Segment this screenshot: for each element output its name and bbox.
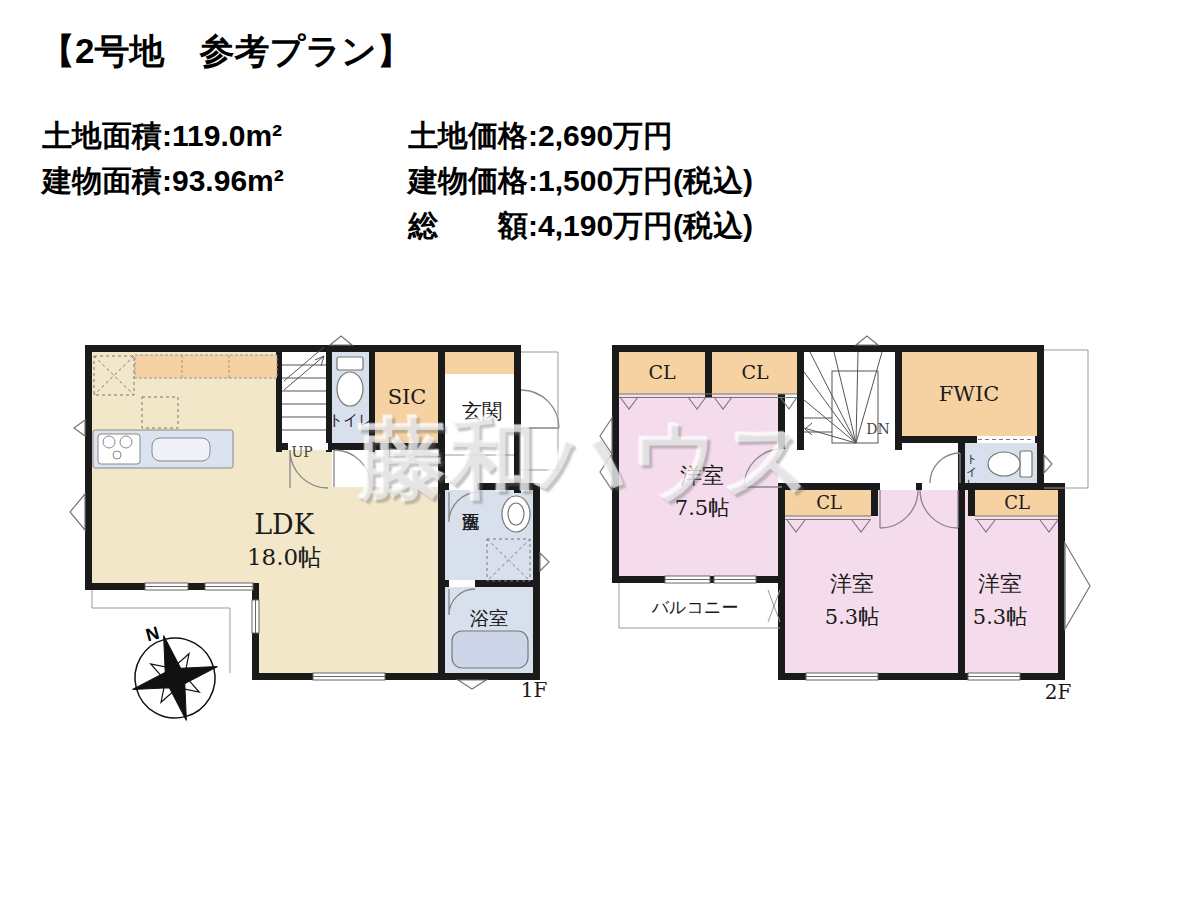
watermark: 藤和ハウス [358,400,814,519]
room-bathroom [445,587,533,673]
land-area-text: 土地面積:119.0m² [42,116,282,157]
page-title: 【2号地 参考プラン】 [40,28,412,75]
building-area-text: 建物面積:93.96m² [42,161,284,202]
label-closet-2: CL [741,363,768,382]
wall [1037,345,1044,490]
total-price-text: 総 額:4,190万円(税込) [408,206,753,247]
wall [1058,483,1065,680]
label-bathroom: 浴室 [470,609,508,628]
label-bedroom2-size: 5.3帖 [825,607,879,628]
wall [276,345,282,452]
floor1-tag: 1F [521,680,548,700]
floorplan-flyer: 【2号地 参考プラン】 土地面積:119.0m² 建物面積:93.96m² 土地… [0,0,1200,900]
label-ldk: LDK [254,511,314,538]
wall [612,345,1044,352]
wall [705,345,712,397]
wall [895,345,902,450]
label-stairs-dn: DN [866,422,889,436]
label-stairs-up: UP [291,445,312,459]
wall [252,583,259,680]
wall [958,490,965,680]
label-bedroom3: 洋室 [978,573,1022,595]
compass-icon [121,624,229,732]
label-balcony: バルコニー [652,599,739,616]
wall [252,673,445,680]
entrance-cabinet [445,352,514,374]
wall [438,580,540,587]
label-toilet-2f: トイレ [966,446,977,484]
label-ldk-size: 18.0帖 [247,546,321,569]
wall [778,483,1065,490]
wall [612,576,785,583]
wall [895,436,1044,443]
floor2-tag: 2F [1045,682,1072,702]
wall [326,345,332,452]
label-closet-1: CL [648,363,675,382]
wall [85,345,92,590]
stairs-1f [282,352,326,443]
label-bedroom2: 洋室 [830,573,874,595]
label-bedroom3-size: 5.3帖 [973,607,1027,628]
wall [778,673,1065,680]
wall [871,490,878,516]
building-price-text: 建物価格:1,500万円(税込) [408,161,753,202]
wall [968,490,975,516]
wall [85,583,258,590]
label-closet-4: CL [1004,494,1030,512]
land-price-text: 土地価格:2,690万円 [408,116,673,157]
wall [85,345,521,352]
label-fwic: FWIC [939,384,1000,405]
compass-north-label: N [144,623,162,647]
label-closet-3: CL [816,494,842,512]
